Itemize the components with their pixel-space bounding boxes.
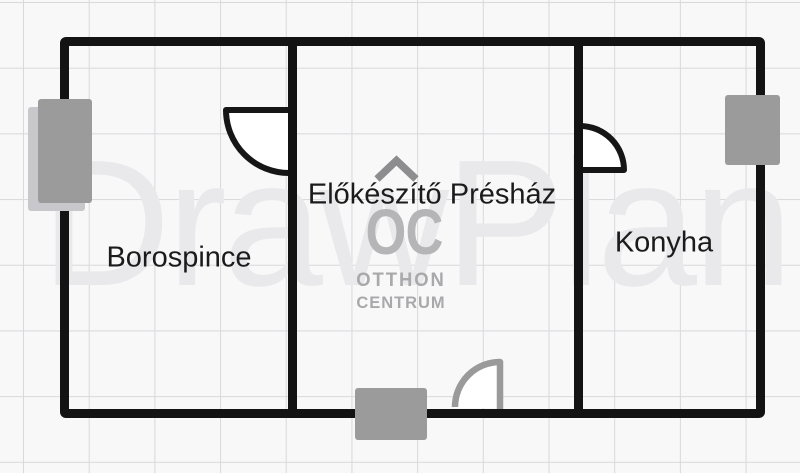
floorplan-canvas: DrawPlan OC OTTHON CENTRUM Borospince El…	[0, 0, 800, 473]
bottom-opening-panel	[355, 388, 427, 440]
interior-wall-borospince	[288, 41, 297, 414]
window-right	[725, 95, 780, 165]
interior-wall-konyha	[574, 41, 583, 414]
room-label-borospince: Borospince	[106, 242, 251, 275]
room-label-konyha: Konyha	[615, 227, 713, 260]
window-left	[38, 99, 92, 203]
room-label-elokeszito-preshaz: Előkészítő Présház	[308, 179, 556, 212]
